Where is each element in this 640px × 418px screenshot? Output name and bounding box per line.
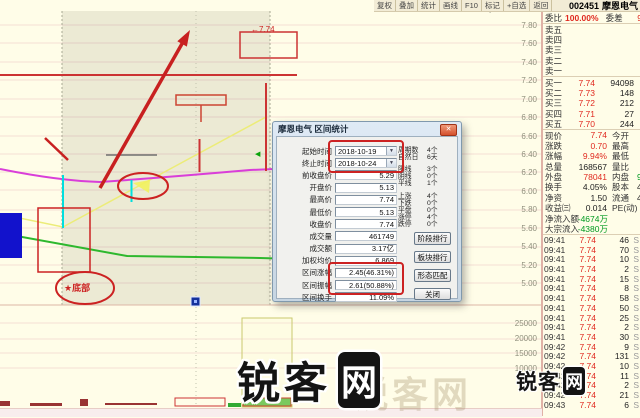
toolbar: 复权叠加统计画线F10标记+自选返回 002451摩恩电气 [374,0,640,12]
bid-price: 7.72 [567,98,595,108]
tick-row: 09:41 7.74 70 S [543,245,640,255]
bid-volume: 148 [595,88,638,98]
tick-row: 09:43 7.74 6 S [543,400,640,410]
price-axis-label: 5.00 [495,279,537,288]
field-label: 最高价 [279,194,335,205]
tick-side: S [632,342,639,352]
toolbar-button[interactable]: F10 [462,0,482,11]
tick-side: S [632,235,639,245]
tick-time: 09:41 [544,264,570,274]
field-label: 成交额 [279,243,335,254]
tick-row: 09:41 7.74 15 S [543,274,640,284]
tick-side: S [632,264,639,274]
tick-volume: 8 [596,283,632,293]
tick-side: S [632,351,639,361]
info-label-2: PE(动) [607,202,638,214]
tick-volume: 70 [596,245,632,255]
price-axis-label: 7.60 [495,39,537,48]
stat-label: 自然日 [398,151,427,161]
tick-price: 7.74 [570,313,596,323]
bid-volume: 27 [595,109,638,119]
dialog-field-row: 区间振幅 2.61(50.88%) ▼ [279,279,399,291]
info-row: 大宗流入 -4380万 [543,224,640,234]
tick-volume: 46 [596,235,632,245]
field-input[interactable]: 2018-10-19 ▼ [335,146,397,156]
field-value: 11.09% [336,293,396,302]
tick-row: 09:42 7.74 2 S [543,381,640,391]
tick-list: 09:41 7.74 46 S 09:41 7.74 70 S 09:41 7.… [543,235,640,409]
volume-axis-label: 20000 [495,334,537,343]
tick-price: 7.74 [570,283,596,293]
tick-volume: 25 [596,313,632,323]
bid-list: 买一 7.74 94098 买二 7.73 148 买三 7.72 212 买四… [543,77,640,129]
tick-price: 7.74 [570,371,596,381]
ask-row: 卖一 [543,66,640,76]
info-value: 168567 [575,162,607,172]
tick-side: S [632,254,639,264]
field-input[interactable]: 5.13 ▼ [335,183,397,193]
tick-time: 09:41 [544,332,570,342]
tick-time: 09:41 [544,313,570,323]
toolbar-button[interactable]: 叠加 [396,0,418,11]
field-value: 7.74 [336,195,396,204]
field-value: 7.74 [336,220,396,229]
field-input[interactable]: 5.13 ▼ [335,207,397,217]
weibi-value: 100.00% [565,13,599,23]
info-value: 7.74 [575,130,607,140]
dialog-field-row: 前收盘价 5.29 ▼ [279,169,399,181]
volume-axis-label: 15000 [495,349,537,358]
toolbar-button[interactable]: 复权 [374,0,396,11]
tick-price: 7.74 [570,322,596,332]
dialog-buttons: 阶段排行板块排行形态匹配关闭 [414,232,451,306]
tick-row: 09:41 7.74 25 S [543,313,640,323]
bid-price: 7.74 [567,78,595,88]
dialog-body: 起始时间 2018-10-19 ▼ 终止时间 2018-10-24 ▼ 前收盘价… [276,136,458,299]
dialog-field-row: 区间换手 11.09% ▼ [279,291,399,303]
tick-side: S [632,380,639,390]
tick-row: 09:41 7.74 8 S [543,284,640,294]
weicha-label: 委差 [606,12,623,24]
tick-volume: 50 [596,303,632,313]
tick-volume: 21 [596,390,632,400]
price-axis-label: 6.60 [495,132,537,141]
price-axis-label: 7.80 [495,21,537,30]
bid-row: 买五 7.70 244 [543,119,640,129]
volume-axis-label: 10000 [495,364,537,373]
dialog-title: 摩恩电气 区间统计 [278,123,348,135]
info-value: -4380万 [578,223,608,235]
toolbar-button[interactable]: 标记 [482,0,504,11]
tick-row: 09:41 7.74 30 S [543,332,640,342]
tick-row: 09:42 7.74 131 S [543,351,640,361]
tick-time: 09:42 [544,371,570,381]
price-axis-label: 5.20 [495,261,537,270]
field-input[interactable]: 11.09% ▼ [335,292,397,302]
field-value: 2.61(50.88%) [336,281,396,290]
tick-price: 7.74 [570,254,596,264]
tick-volume: 6 [596,400,632,410]
price-axis-label: 6.40 [495,150,537,159]
tick-side: S [632,361,639,371]
dialog-button[interactable]: 关闭 [414,288,451,301]
tick-time: 09:41 [544,245,570,255]
tick-volume: 131 [596,351,632,361]
tick-volume: 10 [596,254,632,264]
dialog-title-bar[interactable]: 摩恩电气 区间统计 [273,122,461,136]
tick-price: 7.74 [570,342,596,352]
dialog-button[interactable]: 板块排行 [414,251,451,264]
field-value: 2018-10-19 [336,147,386,156]
stock-header: 002451摩恩电气 [566,0,640,12]
bid-volume: 244 [595,119,638,129]
tick-side: S [632,293,639,303]
price-axis-label: 6.00 [495,187,537,196]
stat-value: 0个 [427,218,438,228]
bid-price: 7.73 [567,88,595,98]
stat-value: 6天 [427,151,438,161]
tick-row: 09:42 7.74 9 S [543,342,640,352]
dialog-field-row: 加权均价 6.869 ▼ [279,255,399,267]
dialog-field-row: 最高价 7.74 ▼ [279,194,399,206]
info-list: 现价 7.74 今开 涨跌 0.70 最高 涨幅 9.94% 最低 总量 168… [543,130,640,234]
tick-volume: 2 [596,380,632,390]
tick-price: 7.74 [570,390,596,400]
tick-row: 09:41 7.74 58 S [543,293,640,303]
tick-time: 09:41 [544,274,570,284]
tick-volume: 15 [596,274,632,284]
quote-panel: 委比 100.00% 委差 9 卖五卖四卖三卖二卖一 买一 7.74 94098… [542,11,640,416]
tick-row: 09:41 7.74 2 S [543,264,640,274]
tick-side: S [632,313,639,323]
field-label: 区间振幅 [279,280,335,291]
tick-volume: 10 [596,361,632,371]
dialog-field-row: 成交量 461749 ▼ [279,230,399,242]
tick-row: 09:42 7.74 11 S [543,371,640,381]
tick-volume: 2 [596,322,632,332]
tick-time: 09:41 [544,254,570,264]
toolbar-button[interactable]: +自选 [504,0,530,11]
tick-volume: 9 [596,342,632,352]
field-value: 5.29 [336,171,396,180]
tick-price: 7.74 [570,274,596,284]
info-value: 9.94% [575,151,607,161]
stat-value: 1个 [427,177,438,187]
field-input[interactable]: 2.61(50.88%) ▼ [335,280,397,290]
dialog-field-row: 收盘价 7.74 ▼ [279,218,399,230]
stat-label: 平线 [398,177,427,187]
bid-price: 7.71 [567,109,595,119]
tick-price: 7.74 [570,293,596,303]
price-axis-label: 7.00 [495,95,537,104]
stat-row: 平线 1个 [398,179,450,186]
dialog-field-row: 区间涨幅 2.45(46.31%) ▼ [279,267,399,279]
field-label: 最低价 [279,207,335,218]
price-axis-label: 6.20 [495,168,537,177]
field-label: 终止时间 [279,158,335,169]
tick-price: 7.74 [570,351,596,361]
tick-price: 7.74 [570,332,596,342]
field-value: 2.45(46.31%) [336,268,396,277]
tick-volume: 11 [596,371,632,381]
tick-price: 7.74 [570,264,596,274]
field-value: 3.17亿 [336,243,396,254]
tick-side: S [632,371,639,381]
toolbar-button[interactable]: 画线 [440,0,462,11]
price-axis-label: 5.80 [495,205,537,214]
info-value: 78041 [575,172,607,182]
tick-side: S [632,400,639,410]
field-value: 6.869 [336,256,396,265]
chevron-down-icon[interactable]: ▼ [386,147,396,155]
dialog-field-row: 起始时间 2018-10-19 ▼ [279,145,399,157]
field-input[interactable]: 2018-10-24 ▼ [335,158,397,168]
field-input[interactable]: 5.29 ▼ [335,170,397,180]
field-label: 加权均价 [279,255,335,266]
field-value: 461749 [336,232,396,241]
field-label: 收盘价 [279,219,335,230]
chevron-down-icon[interactable]: ▼ [386,159,396,167]
tick-volume: 2 [596,264,632,274]
tick-price: 7.74 [570,245,596,255]
dialog-field-row: 终止时间 2018-10-24 ▼ [279,157,399,169]
info-value: 0.70 [575,141,607,151]
ask-label: 卖一 [545,65,567,77]
bid-label: 买五 [545,118,567,130]
field-label: 前收盘价 [279,170,335,181]
tick-time: 09:43 [544,400,570,410]
interval-stats-dialog: 摩恩电气 区间统计 ✕ 起始时间 2018-10-19 ▼ 终止时间 2018-… [272,121,462,302]
bid-volume: 212 [595,98,638,108]
field-label: 开盘价 [279,182,335,193]
dialog-fields: 起始时间 2018-10-19 ▼ 终止时间 2018-10-24 ▼ 前收盘价… [279,145,399,303]
tick-side: S [632,283,639,293]
price-axis-label: 7.40 [495,58,537,67]
tick-row: 09:42 7.74 10 S [543,361,640,371]
tick-volume: 30 [596,332,632,342]
tick-side: S [632,390,639,400]
tick-price: 7.74 [570,400,596,410]
tick-price: 7.74 [570,235,596,245]
stat-row: 跌停 0个 [398,220,450,227]
tick-time: 09:42 [544,342,570,352]
dialog-field-row: 成交额 3.17亿 ▼ [279,243,399,255]
info-value: 4.05% [575,182,607,192]
tick-price: 7.74 [570,303,596,313]
toolbar-button[interactable]: 统计 [418,0,440,11]
field-value: 5.13 [336,208,396,217]
field-input[interactable]: 3.17亿 ▼ [335,244,397,254]
ask-list: 卖五卖四卖三卖二卖一 [543,24,640,76]
tick-price: 7.74 [570,380,596,390]
field-input[interactable]: 7.74 ▼ [335,219,397,229]
price-axis-label: 7.20 [495,76,537,85]
tick-time: 09:41 [544,322,570,332]
toolbar-button[interactable]: 返回 [530,0,552,11]
tick-time: 09:41 [544,235,570,245]
field-input[interactable]: 2.45(46.31%) ▼ [335,268,397,278]
field-label: 起始时间 [279,146,335,157]
tick-time: 09:42 [544,380,570,390]
price-axis-label: 5.40 [495,242,537,251]
tick-time: 09:41 [544,303,570,313]
dialog-button[interactable]: 阶段排行 [414,232,451,245]
tick-side: S [632,322,639,332]
tick-row: 09:41 7.74 50 S [543,303,640,313]
tick-side: S [632,332,639,342]
dialog-button[interactable]: 形态匹配 [414,269,451,282]
field-value: 2018-10-24 [336,159,386,168]
field-label: 区间涨幅 [279,267,335,278]
stock-code: 002451 [569,1,599,11]
info-value: 1.50 [575,193,607,203]
field-label: 区间换手 [279,292,335,303]
bid-price: 7.70 [567,119,595,129]
tick-volume: 58 [596,293,632,303]
dialog-field-row: 开盘价 5.13 ▼ [279,182,399,194]
tick-price: 7.74 [570,361,596,371]
tick-row: 09:41 7.74 2 S [543,322,640,332]
tick-row: 09:41 7.74 46 S [543,235,640,245]
tick-side: S [632,303,639,313]
stock-name: 摩恩电气 [602,1,638,11]
tick-side: S [632,245,639,255]
info-label: 大宗流入 [545,223,578,235]
tick-time: 09:42 [544,351,570,361]
volume-axis-label: 25000 [495,319,537,328]
weibi-row: 委比 100.00% 委差 9 [543,13,640,23]
dialog-stats: 周期数 4个 自然日 6天 阳线 3个 阴线 0个 平线 1个 上涨 4个 下跌… [398,145,450,227]
tick-side: S [632,274,639,284]
tick-time: 09:41 [544,293,570,303]
bid-volume: 94098 [595,78,638,88]
field-value: 5.13 [336,183,396,192]
stat-label: 跌停 [398,218,427,228]
field-input[interactable]: 7.74 ▼ [335,195,397,205]
close-icon[interactable]: ✕ [440,124,457,136]
field-label: 成交量 [279,231,335,242]
price-axis-label: 6.80 [495,113,537,122]
tick-time: 09:42 [544,390,570,400]
field-input[interactable]: 461749 ▼ [335,231,397,241]
weibi-label: 委比 [545,12,562,24]
tick-row: 09:42 7.74 21 S [543,390,640,400]
stat-row: 自然日 6天 [398,152,450,159]
tick-time: 09:42 [544,361,570,371]
tick-row: 09:41 7.74 10 S [543,255,640,265]
field-input[interactable]: 6.869 ▼ [335,256,397,266]
tick-time: 09:41 [544,283,570,293]
dialog-field-row: 最低价 5.13 ▼ [279,206,399,218]
price-axis-label: 5.60 [495,224,537,233]
